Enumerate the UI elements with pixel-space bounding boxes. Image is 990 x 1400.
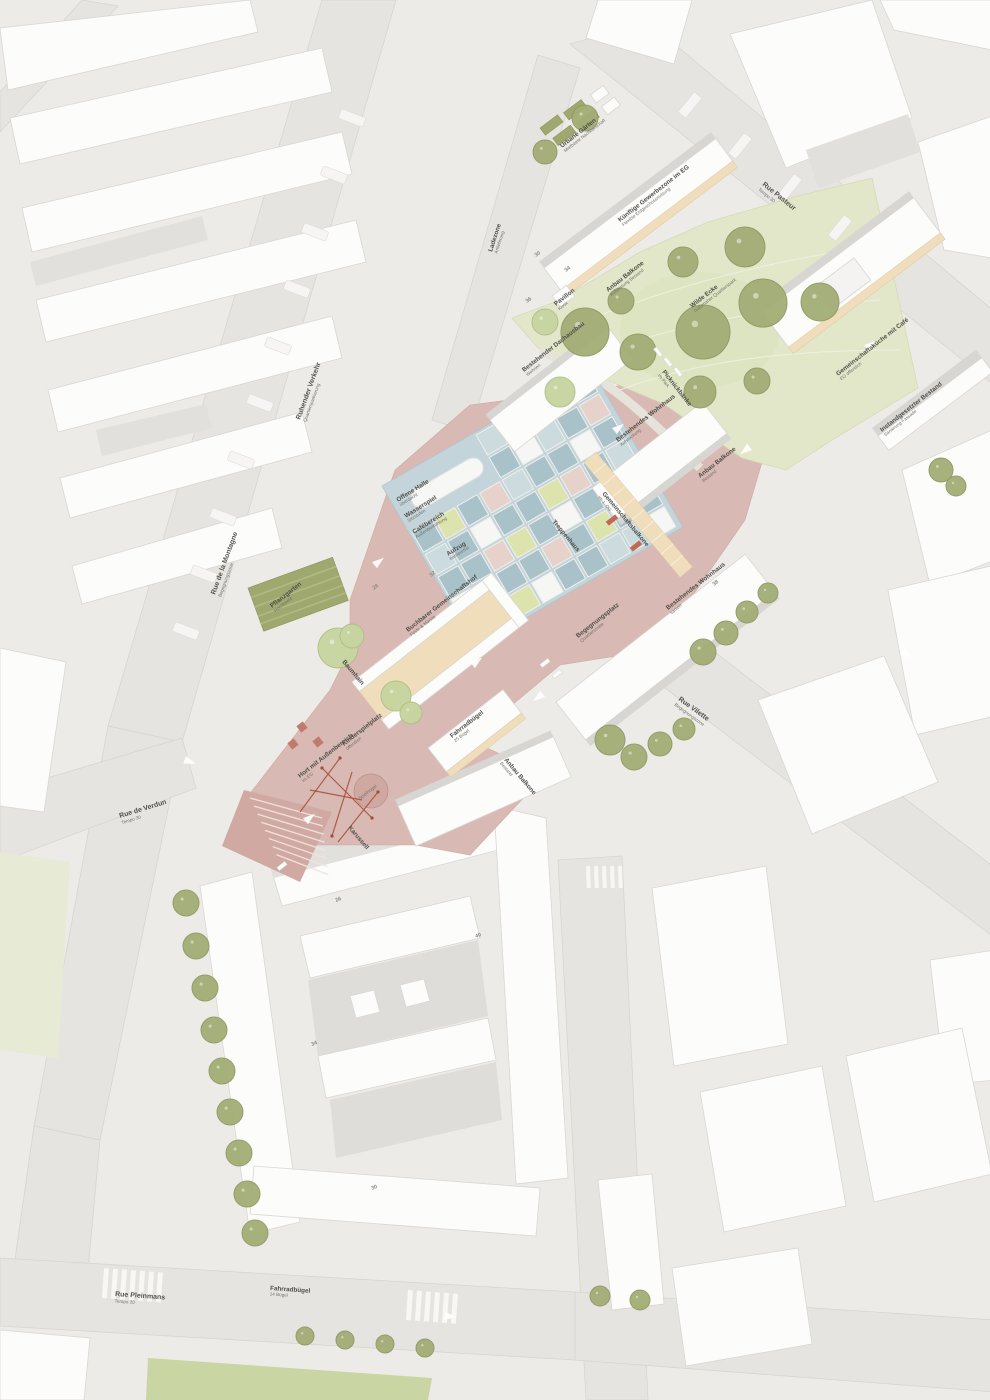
storey-number: 40: [475, 932, 483, 940]
lawn-bottom: [146, 1358, 432, 1400]
site-plan-canvas: Rue de la MontagneBegegnungszone Ruhende…: [0, 0, 990, 1400]
storey-number: 36: [525, 296, 533, 304]
grass-strip-left: [0, 852, 70, 1058]
garden-pflanzgarten: [248, 557, 348, 631]
site-plan-drawing: Rue de la MontagneBegegnungszone Ruhende…: [0, 0, 990, 1400]
storey-number: 30: [534, 250, 542, 258]
label-ruhender-verkehr: Ruhender VerkehrQuartiersparkierung: [295, 361, 327, 422]
storey-number: 26: [335, 896, 343, 904]
